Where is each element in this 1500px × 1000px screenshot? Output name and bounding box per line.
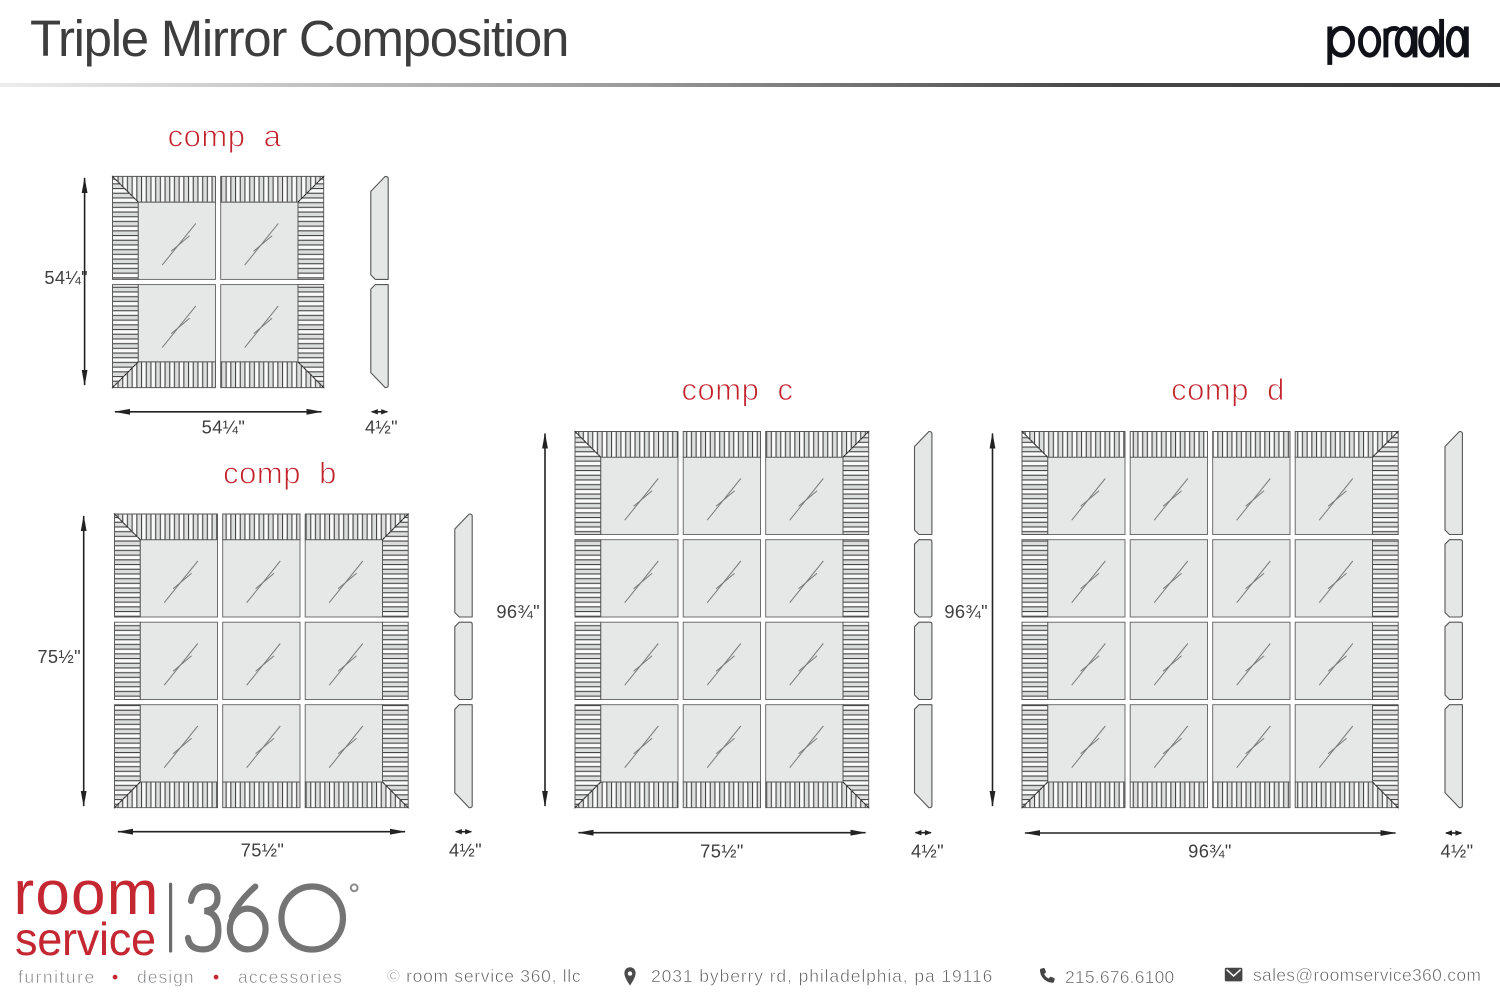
svg-text:4½": 4½" [911, 841, 944, 862]
svg-text:4½": 4½" [1440, 841, 1473, 862]
svg-text:4½": 4½" [449, 840, 482, 861]
svg-text:comp d: comp d [1171, 372, 1285, 407]
svg-text:comp a: comp a [168, 119, 282, 154]
svg-text:75½": 75½" [700, 841, 744, 862]
svg-text:75½": 75½" [37, 646, 81, 667]
svg-text:96¾": 96¾" [1188, 841, 1232, 862]
svg-text:comp c: comp c [682, 372, 794, 407]
svg-text:54¼": 54¼" [44, 267, 88, 288]
svg-text:4½": 4½" [365, 417, 398, 438]
svg-text:96¾": 96¾" [496, 601, 540, 622]
svg-text:75½": 75½" [241, 840, 285, 861]
svg-text:comp b: comp b [223, 455, 337, 490]
svg-text:54¼": 54¼" [202, 417, 246, 438]
svg-text:96¾": 96¾" [944, 601, 988, 622]
